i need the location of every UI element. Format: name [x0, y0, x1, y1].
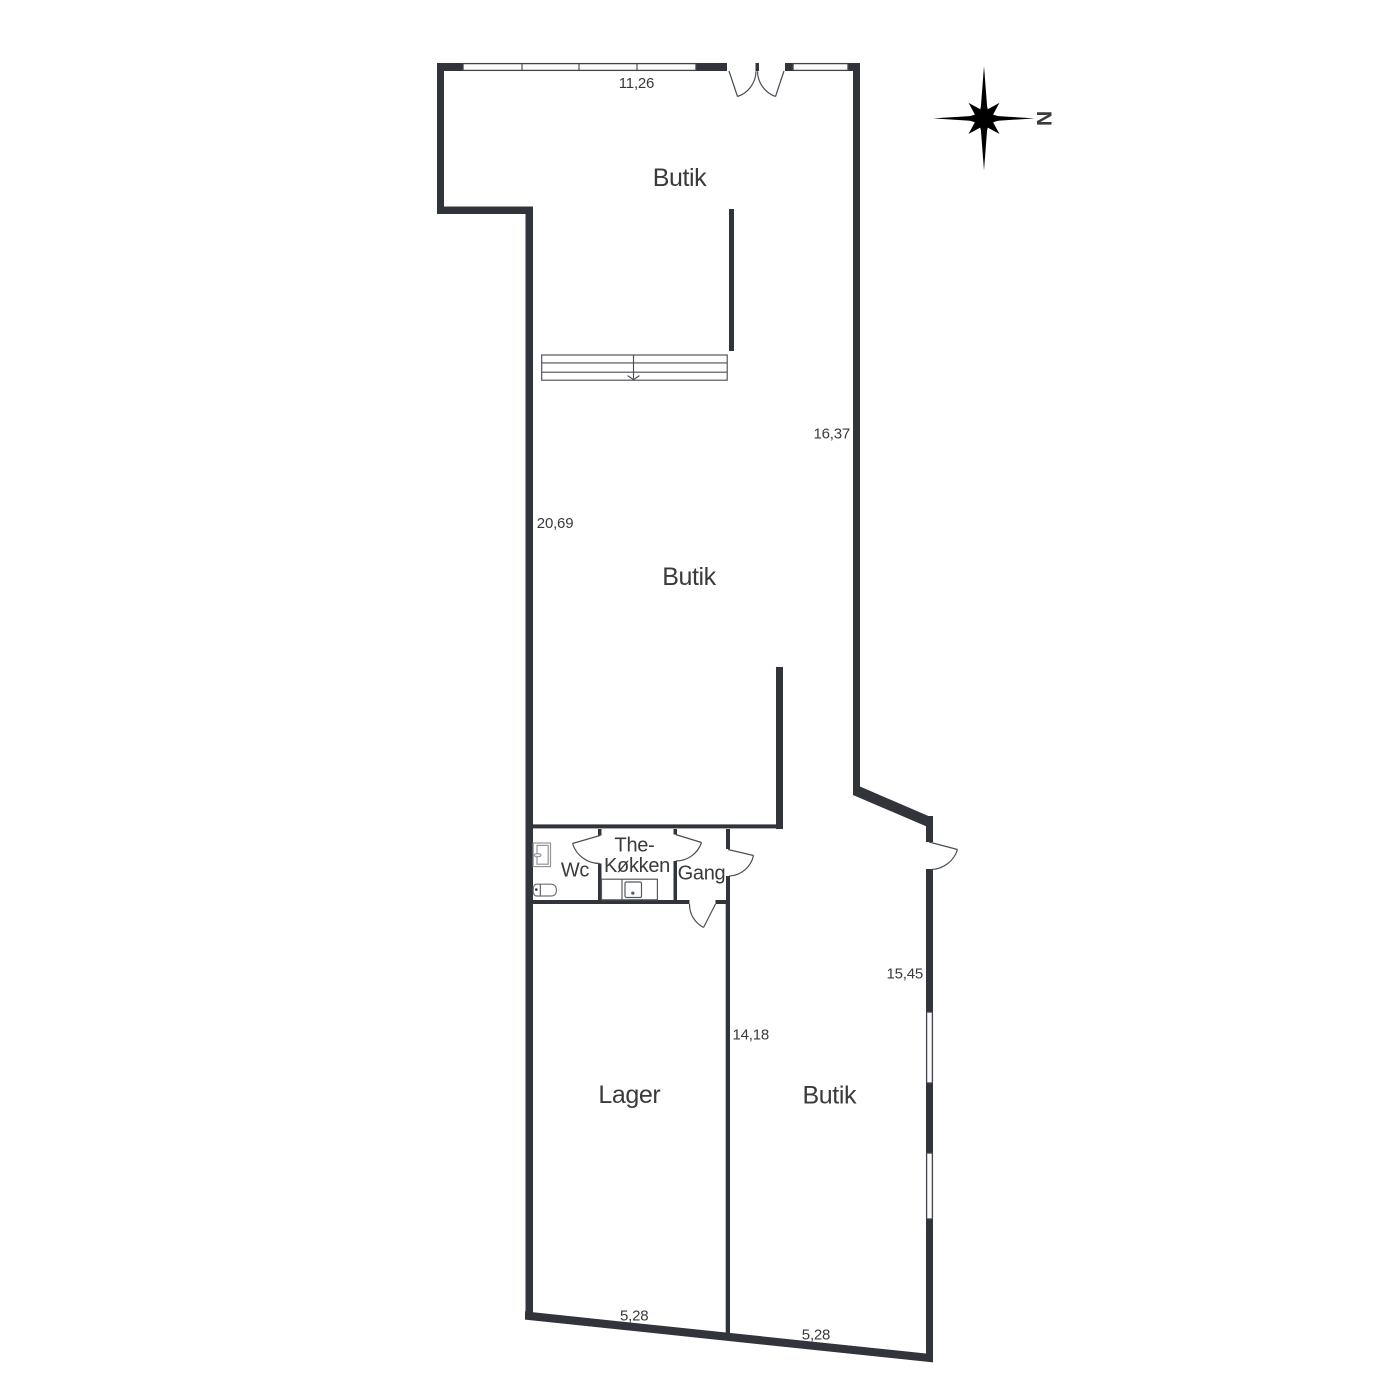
- svg-text:Butik: Butik: [803, 1082, 857, 1110]
- svg-text:Gang: Gang: [678, 863, 726, 885]
- svg-text:Lager: Lager: [598, 1081, 660, 1109]
- svg-text:Butik: Butik: [662, 563, 716, 591]
- svg-text:Wc: Wc: [561, 860, 590, 882]
- svg-text:16,37: 16,37: [813, 425, 850, 442]
- svg-text:N: N: [1032, 111, 1055, 126]
- svg-text:5,28: 5,28: [802, 1326, 830, 1343]
- svg-text:Butik: Butik: [653, 164, 707, 192]
- svg-text:14,18: 14,18: [733, 1027, 770, 1044]
- svg-text:Køkken: Køkken: [604, 855, 670, 877]
- svg-text:The-: The-: [615, 835, 655, 857]
- svg-text:15,45: 15,45: [886, 965, 923, 982]
- svg-text:20,69: 20,69: [537, 515, 574, 532]
- svg-text:5,28: 5,28: [620, 1308, 648, 1325]
- svg-text:11,26: 11,26: [619, 75, 654, 92]
